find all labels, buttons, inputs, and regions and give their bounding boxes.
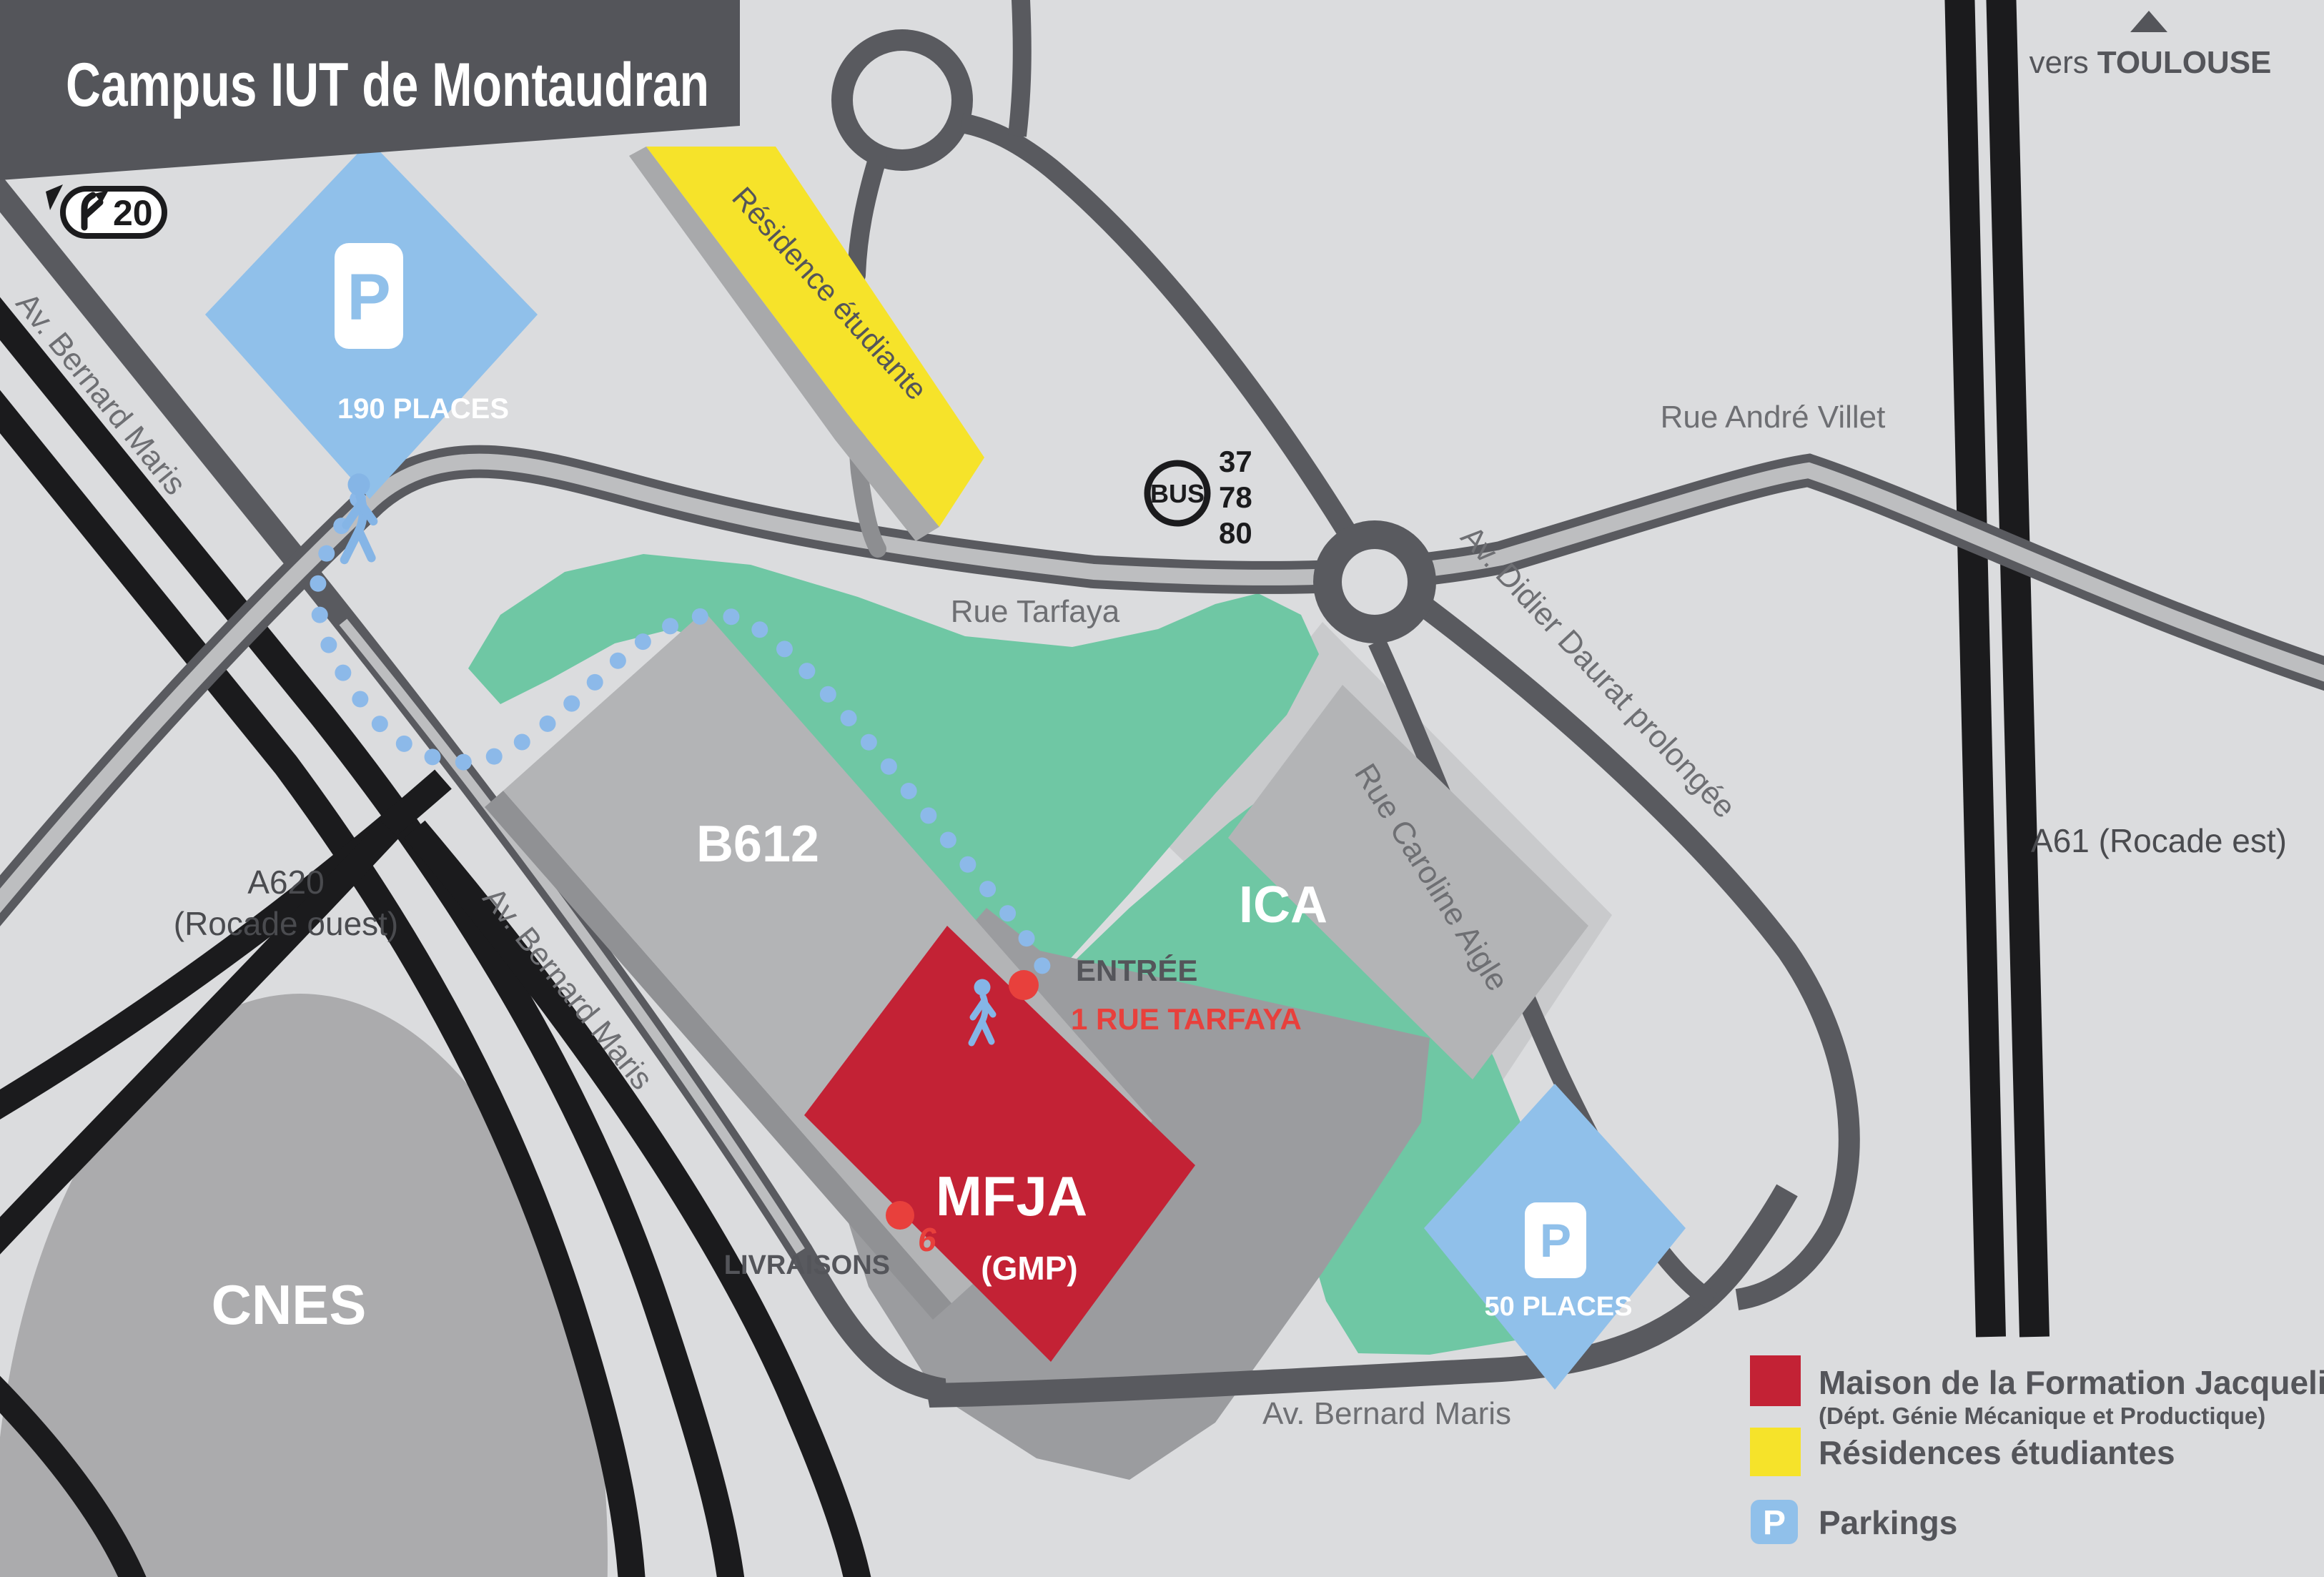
label-rue-tarfaya: Rue Tarfaya (951, 594, 1120, 629)
legend-swatch-mfja (1750, 1355, 1801, 1406)
map-canvas: B612 ICA MFJA (GMP) Résidence étudiante … (0, 0, 2324, 1577)
legend-label-mfja: Maison de la Formation Jacqueline Auriol (1819, 1364, 2324, 1401)
ica-label: ICA (1239, 876, 1327, 934)
entrance-label: ENTRÉE (1076, 954, 1197, 987)
toulouse-text: TOULOUSE (2097, 45, 2272, 80)
deliveries-label: LIVRAISONS (724, 1250, 890, 1280)
exit-number: 20 (113, 193, 153, 233)
mfja-dept-label: (GMP) (981, 1250, 1077, 1287)
label-a620-sub: (Rocade ouest) (174, 905, 399, 942)
road-loop-stub (1017, 0, 1022, 136)
entrance-address-label: 1 RUE TARFAYA (1071, 1002, 1302, 1036)
bus-label: BUS (1150, 479, 1205, 508)
label-a61: A61 (Rocade est) (2031, 822, 2287, 859)
legend-label-residences: Résidences étudiantes (1819, 1434, 2175, 1471)
bus-line-80: 80 (1219, 516, 1252, 550)
bus-line-37: 37 (1219, 445, 1252, 478)
campus-map: B612 ICA MFJA (GMP) Résidence étudiante … (0, 0, 2324, 1577)
parking-50-label: 50 PLACES (1485, 1292, 1633, 1322)
deliveries-number: 6 (918, 1221, 936, 1258)
legend-swatch-residences (1750, 1428, 1801, 1476)
mfja-label: MFJA (936, 1165, 1087, 1227)
roundabout (1313, 520, 1436, 643)
svg-text:versTOULOUSE: versTOULOUSE (2029, 45, 2272, 80)
b612-label: B612 (696, 816, 819, 873)
deliveries-dot (886, 1201, 914, 1230)
legend-sublabel-mfja: (Dépt. Génie Mécanique et Productique) (1819, 1403, 2265, 1429)
label-av-bernard-maris-bottom: Av. Bernard Maris (1262, 1396, 1511, 1431)
vers-text: vers (2029, 45, 2089, 80)
parking-p-letter: P (1540, 1214, 1571, 1267)
parking-190-label: 190 PLACES (337, 393, 509, 425)
cnes-label: CNES (212, 1273, 367, 1336)
bus-line-78: 78 (1219, 480, 1252, 514)
legend-p-letter: P (1763, 1504, 1786, 1542)
entrance-dot (1009, 970, 1039, 1000)
label-a620: A620 (247, 864, 324, 901)
parking-p-letter: P (347, 261, 390, 334)
page-title: Campus IUT de Montaudran (66, 51, 709, 119)
legend-label-parkings: Parkings (1819, 1504, 1957, 1541)
label-rue-andre-villet: Rue André Villet (1661, 400, 1886, 435)
